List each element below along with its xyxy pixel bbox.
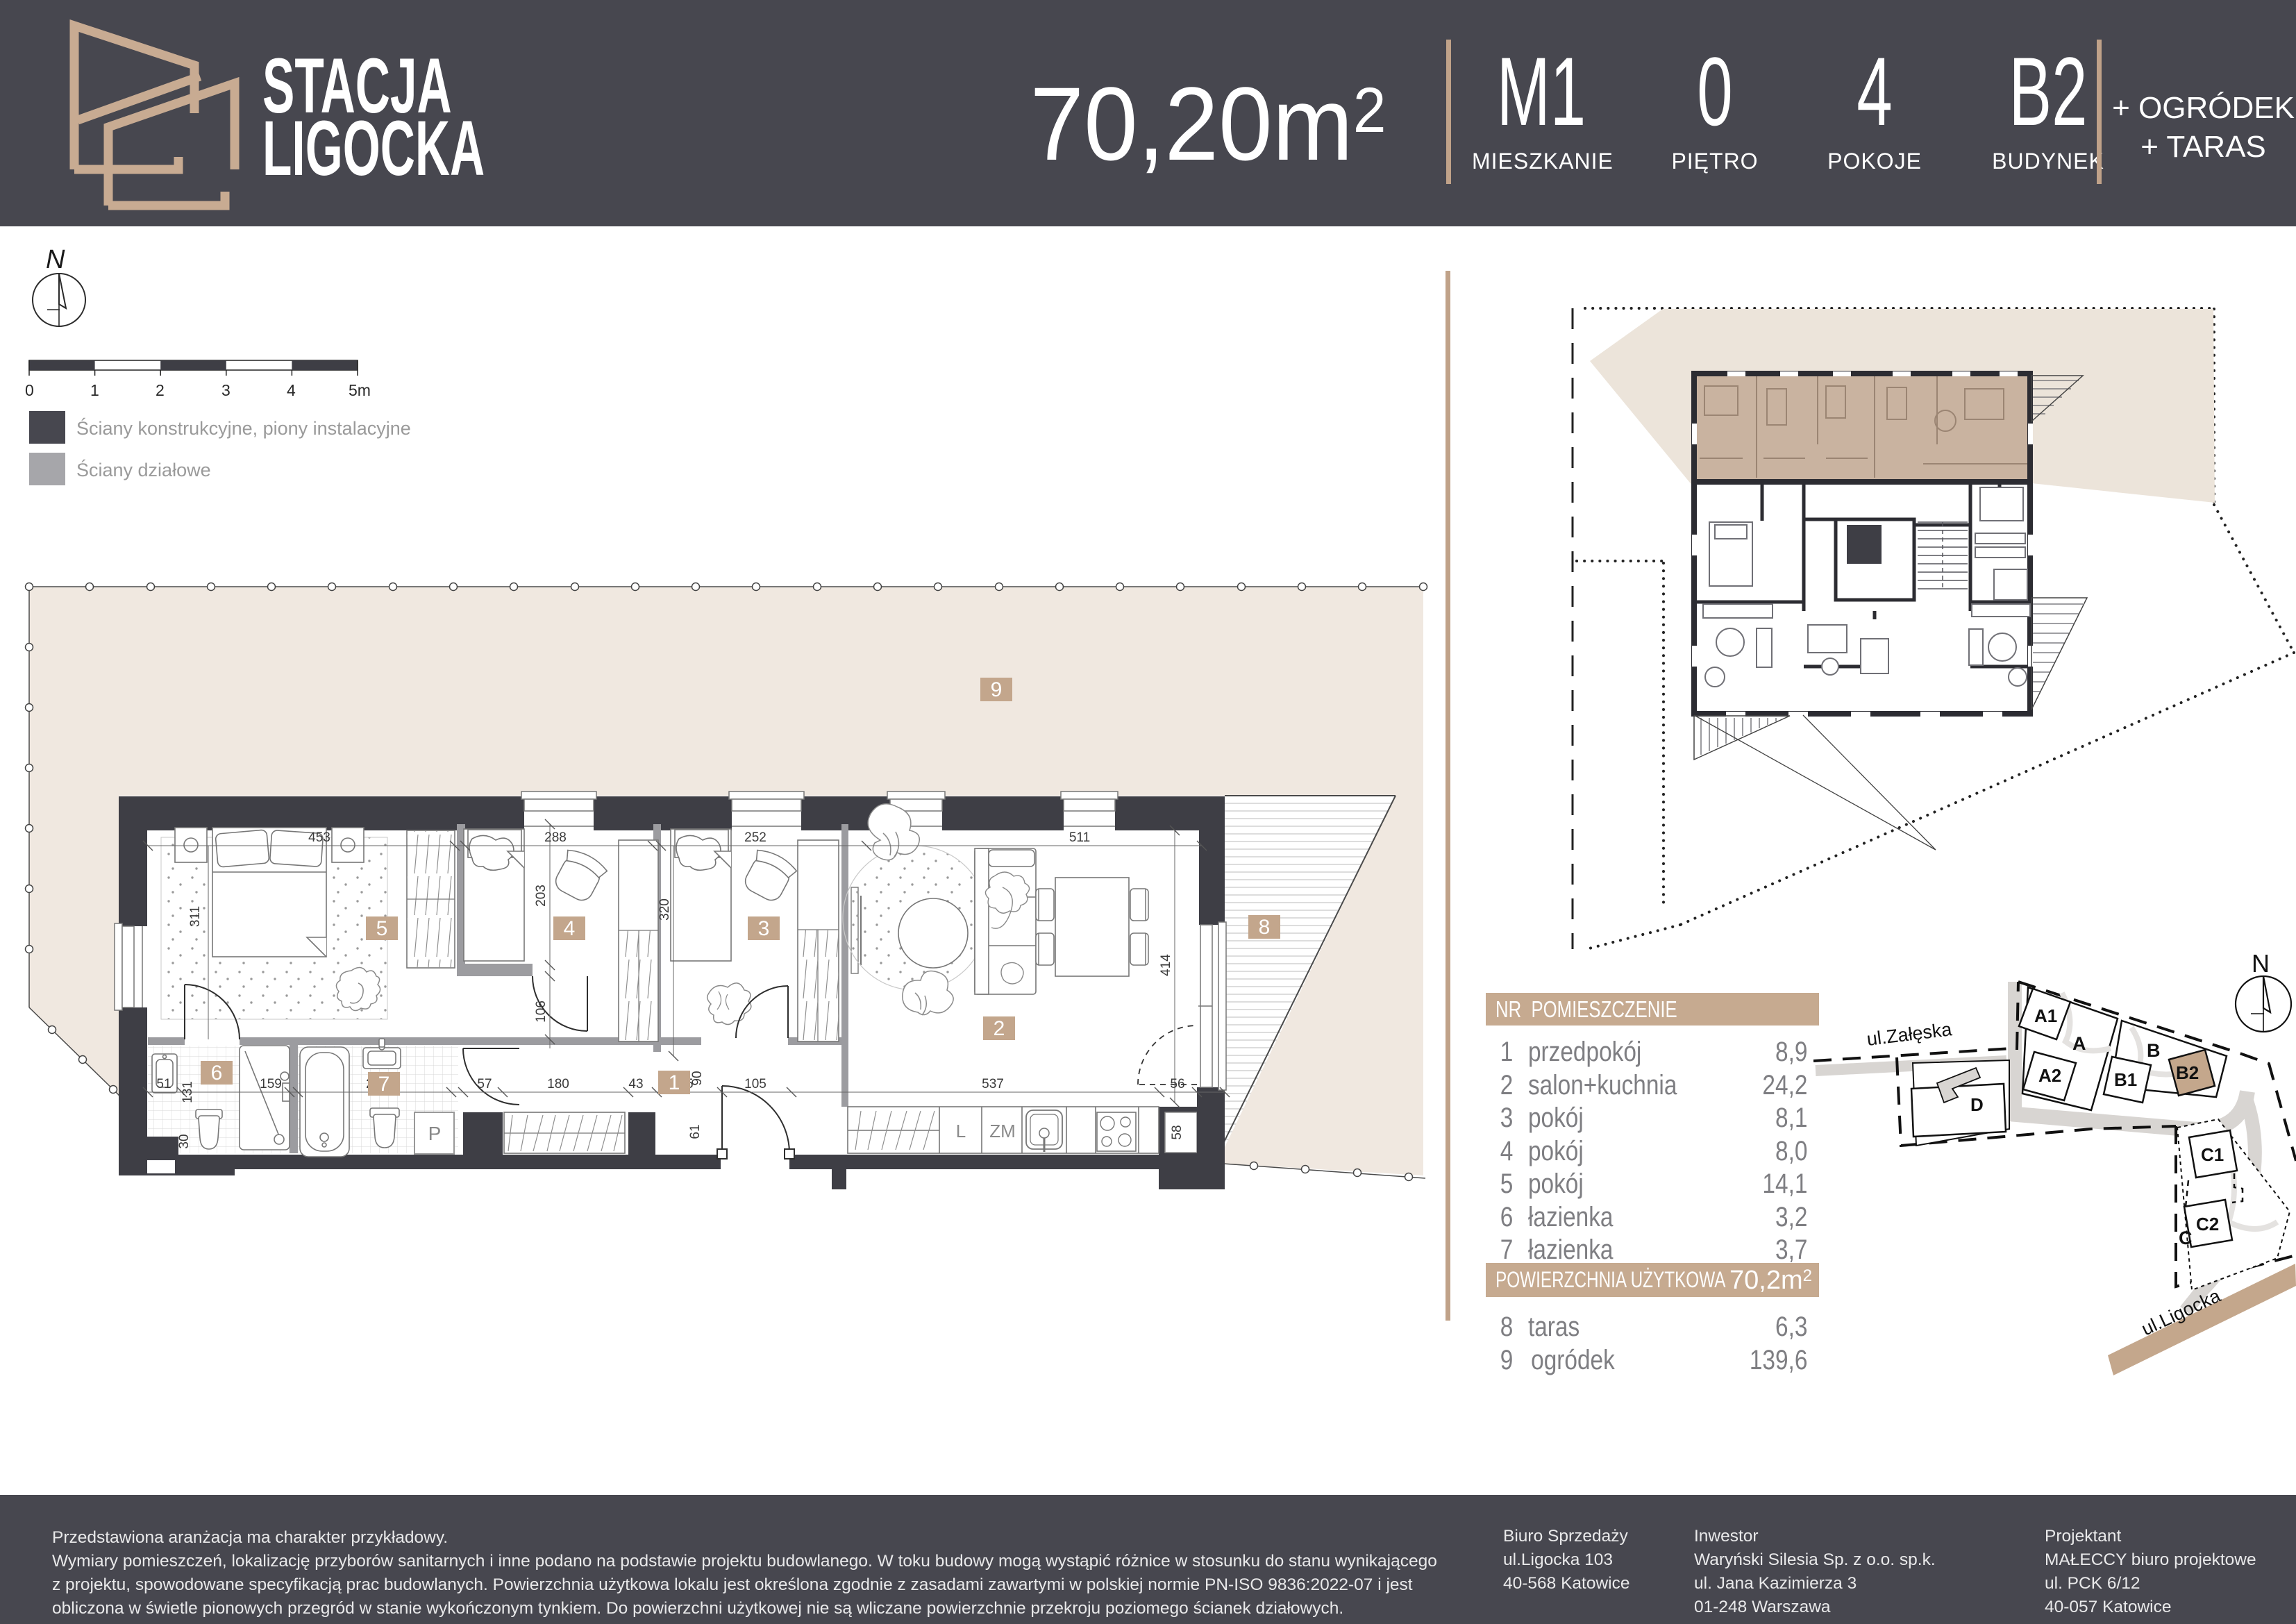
svg-text:B2: B2 <box>2176 1062 2199 1083</box>
svg-text:1: 1 <box>90 381 99 399</box>
svg-text:320: 320 <box>657 898 672 921</box>
svg-text:51: 51 <box>156 1077 171 1091</box>
svg-text:Ściany konstrukcyjne, piony in: Ściany konstrukcyjne, piony instalacyjne <box>76 417 411 439</box>
svg-text:0: 0 <box>25 381 34 399</box>
svg-text:N: N <box>46 245 65 274</box>
svg-text:4: 4 <box>287 381 296 399</box>
svg-text:A: A <box>2072 1033 2086 1054</box>
svg-text:537: 537 <box>982 1077 1004 1091</box>
svg-text:203: 203 <box>534 885 548 907</box>
svg-text:311: 311 <box>188 906 203 927</box>
svg-text:43: 43 <box>628 1077 643 1091</box>
svg-text:2: 2 <box>156 381 165 399</box>
svg-text:Ściany działowe: Ściany działowe <box>76 458 211 480</box>
svg-text:288: 288 <box>544 830 567 845</box>
svg-text:1: 1 <box>669 1071 680 1094</box>
svg-text:56: 56 <box>1170 1077 1184 1091</box>
svg-text:6: 6 <box>211 1062 223 1085</box>
svg-text:P: P <box>428 1123 442 1144</box>
svg-text:90: 90 <box>690 1071 705 1085</box>
svg-text:3: 3 <box>758 917 770 940</box>
svg-text:A2: A2 <box>2038 1065 2061 1086</box>
svg-text:9: 9 <box>991 678 1003 701</box>
svg-text:3: 3 <box>221 381 231 399</box>
svg-text:7: 7 <box>378 1073 390 1096</box>
svg-text:4: 4 <box>564 917 576 940</box>
svg-text:414: 414 <box>1159 954 1173 976</box>
svg-text:511: 511 <box>1069 830 1090 845</box>
svg-text:61: 61 <box>688 1124 703 1139</box>
svg-text:2: 2 <box>994 1017 1005 1040</box>
svg-text:252: 252 <box>744 830 766 845</box>
svg-text:106: 106 <box>534 1001 548 1023</box>
svg-text:57: 57 <box>477 1077 492 1091</box>
svg-text:8: 8 <box>1259 916 1271 939</box>
svg-text:58: 58 <box>1170 1125 1184 1139</box>
svg-text:C1: C1 <box>2201 1144 2224 1165</box>
svg-text:L: L <box>956 1121 966 1141</box>
svg-text:5m: 5m <box>349 381 371 399</box>
svg-text:5: 5 <box>376 917 388 940</box>
svg-text:159: 159 <box>260 1077 282 1091</box>
svg-text:N: N <box>2252 949 2270 978</box>
svg-text:B: B <box>2147 1040 2161 1061</box>
svg-text:180: 180 <box>547 1077 569 1091</box>
svg-text:453: 453 <box>308 830 330 845</box>
svg-text:131: 131 <box>181 1081 195 1103</box>
svg-text:ZM: ZM <box>989 1121 1016 1141</box>
svg-text:D: D <box>1970 1094 1984 1115</box>
svg-text:C2: C2 <box>2196 1214 2219 1234</box>
svg-text:C: C <box>2179 1228 2193 1248</box>
svg-text:105: 105 <box>744 1077 766 1091</box>
svg-text:A1: A1 <box>2034 1005 2057 1026</box>
svg-text:B1: B1 <box>2114 1069 2137 1090</box>
svg-text:ul.Załęska: ul.Załęska <box>1866 1019 1954 1050</box>
svg-text:30: 30 <box>177 1134 192 1148</box>
